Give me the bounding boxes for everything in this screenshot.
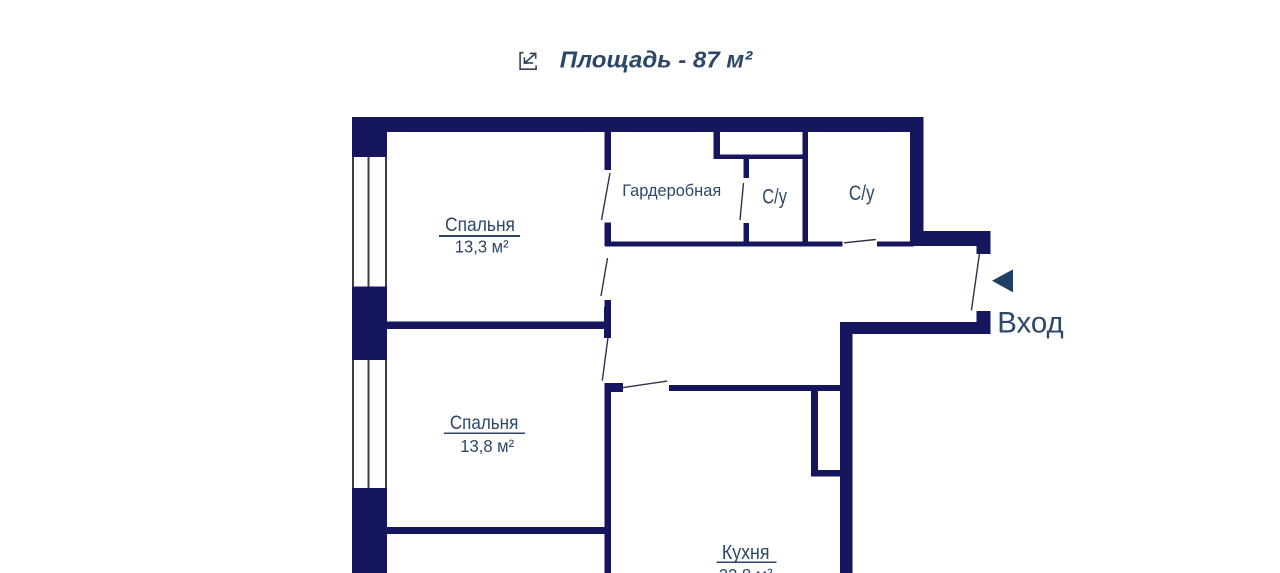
svg-text:Кухня: Кухня bbox=[722, 542, 770, 564]
svg-text:13,8 м²: 13,8 м² bbox=[460, 436, 514, 456]
svg-text:Спальня: Спальня bbox=[450, 412, 518, 434]
svg-text:Спальня: Спальня bbox=[445, 214, 515, 236]
svg-text:22,8 м²: 22,8 м² bbox=[719, 565, 773, 573]
svg-text:Площадь - 87 м²: Площадь - 87 м² bbox=[560, 47, 754, 73]
svg-text:С/у: С/у bbox=[849, 182, 875, 205]
svg-text:С/у: С/у bbox=[762, 185, 787, 208]
svg-text:Вход: Вход bbox=[997, 306, 1063, 339]
svg-text:Гардеробная: Гардеробная bbox=[622, 182, 721, 200]
svg-text:13,3 м²: 13,3 м² bbox=[455, 237, 509, 257]
